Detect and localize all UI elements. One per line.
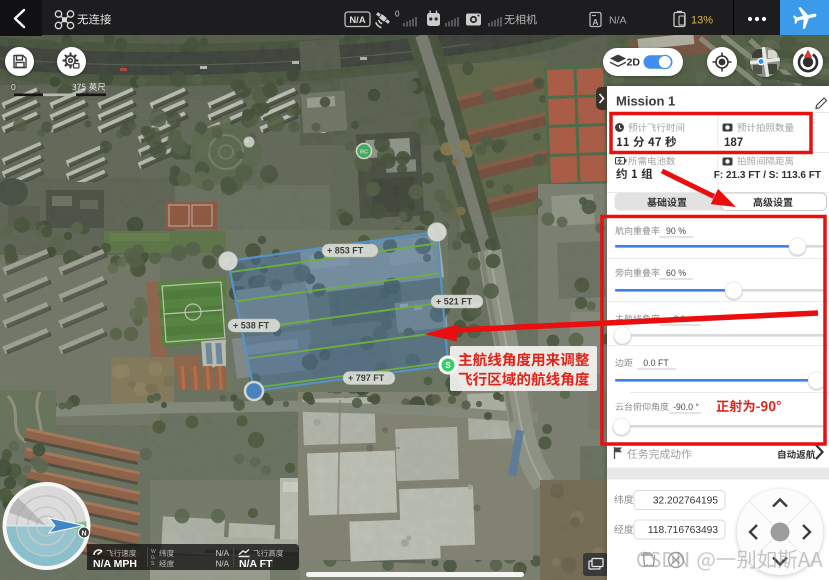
svg-text:0: 0: [11, 82, 16, 92]
svg-text:S: S: [151, 561, 155, 567]
svg-text:N/A FT: N/A FT: [239, 558, 273, 570]
svg-text:N: N: [81, 531, 86, 538]
svg-text:2D: 2D: [627, 57, 641, 69]
svg-text:N/A MPH: N/A MPH: [93, 558, 137, 570]
svg-text:N/A: N/A: [216, 560, 230, 569]
svg-text:N/A: N/A: [216, 549, 230, 558]
